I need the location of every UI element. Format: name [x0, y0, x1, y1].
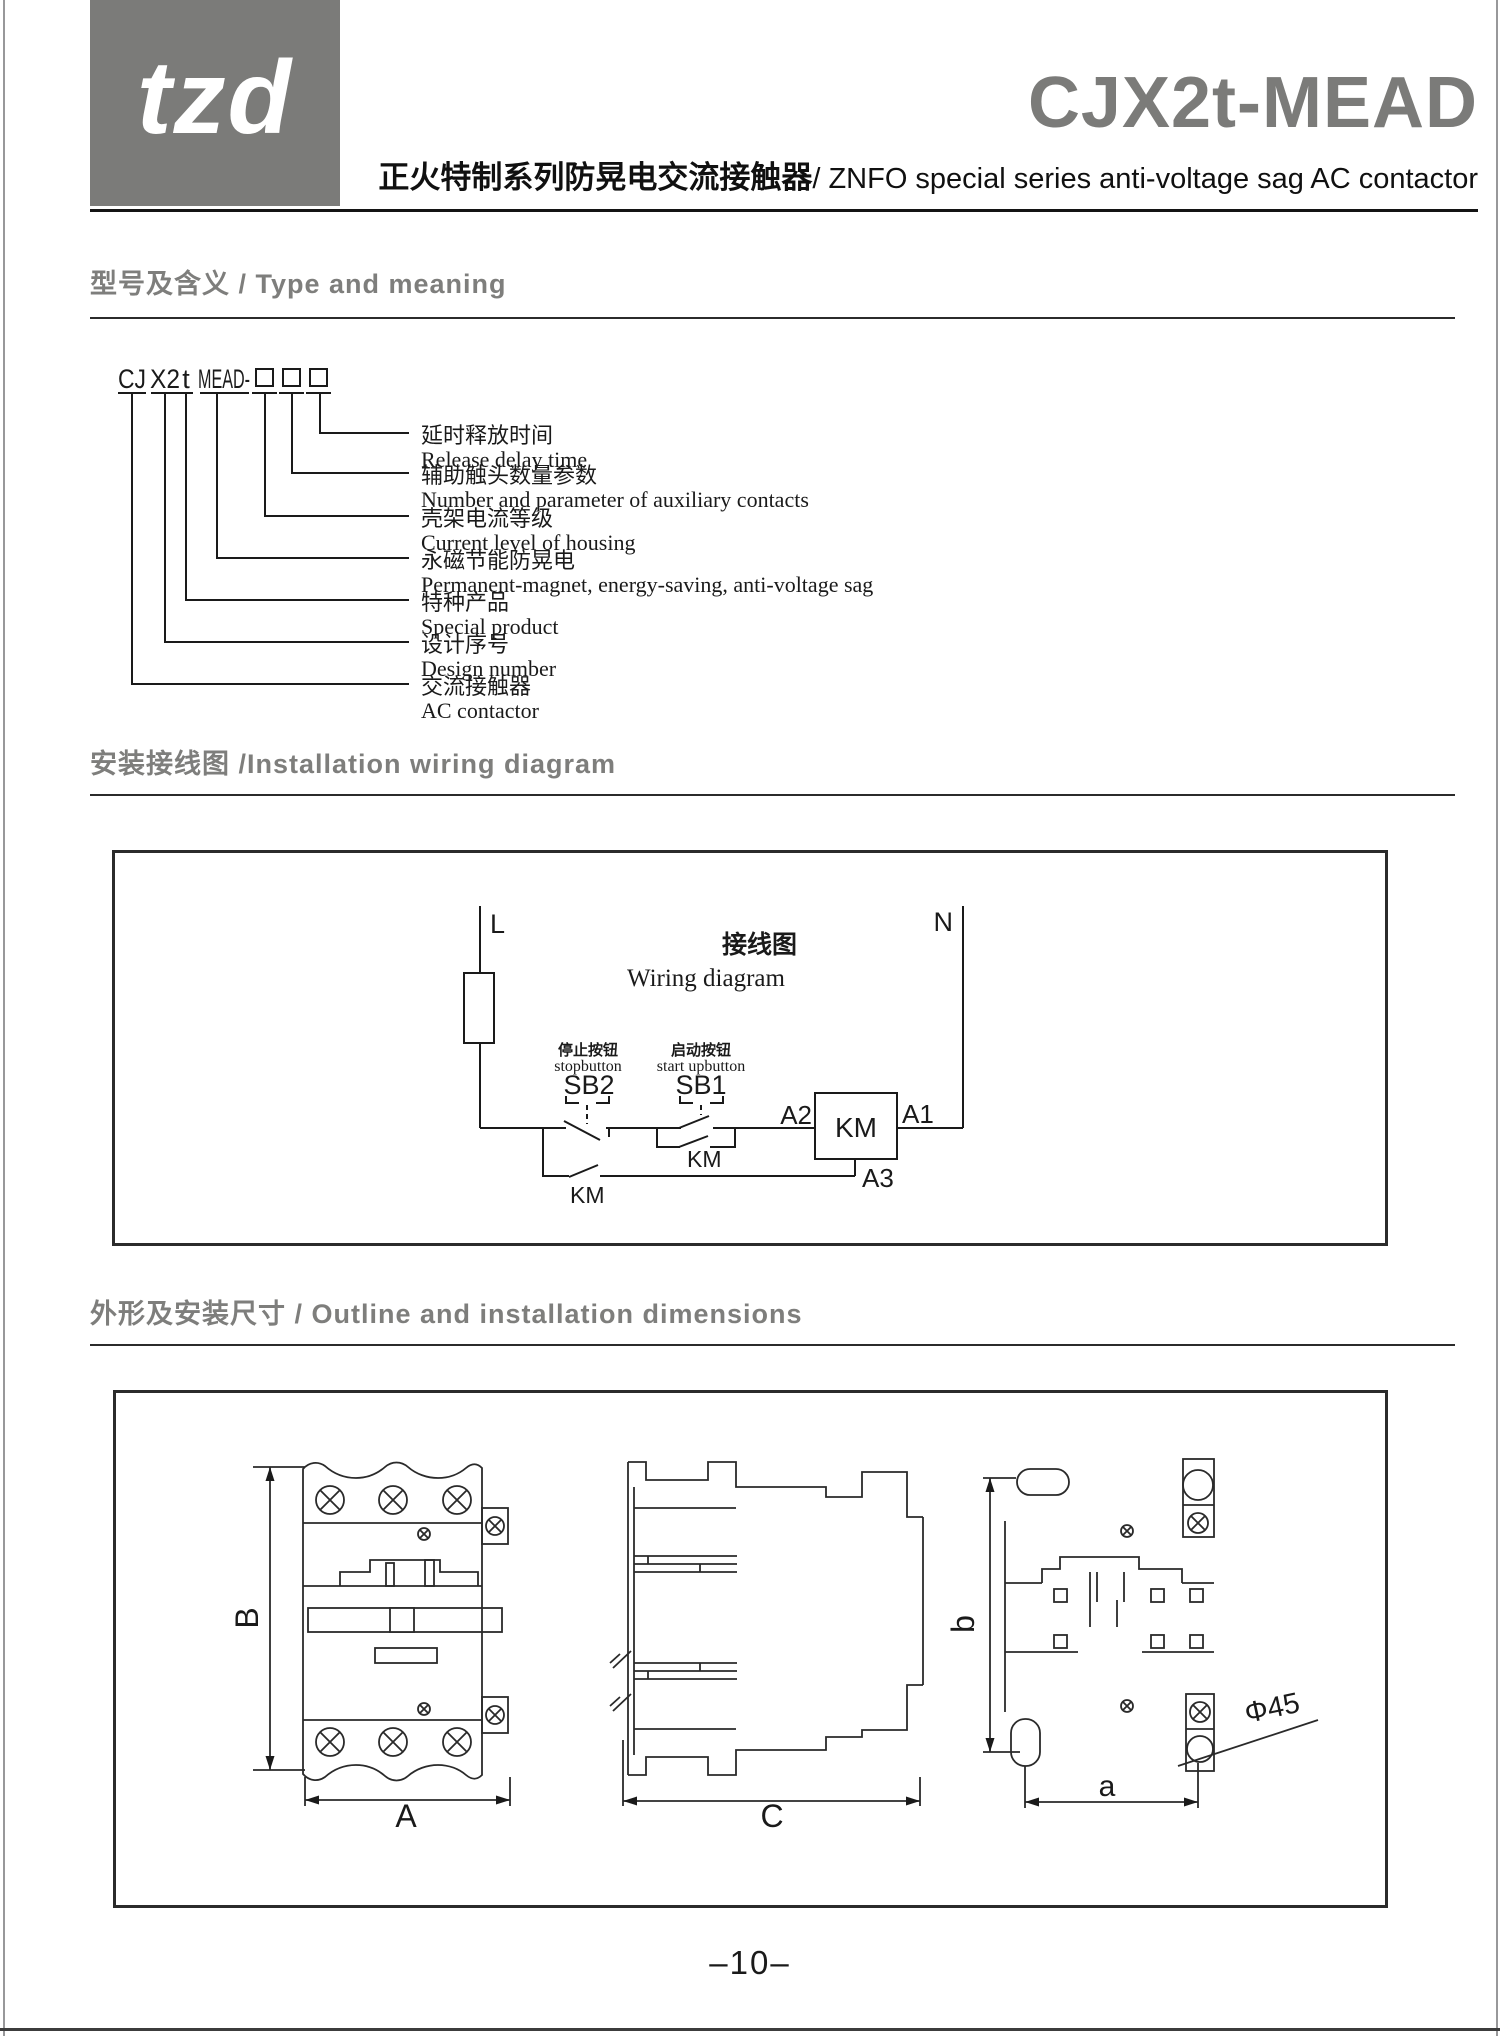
stop-button-label-zh: 停止按钮 — [558, 1041, 618, 1059]
page-title: CJX2t-MEAD — [400, 62, 1478, 144]
aux-tab-bottom — [482, 1697, 508, 1733]
code-box-3 — [310, 369, 327, 386]
dimension-a: a — [1025, 1763, 1198, 1808]
mounting-slot-bottom — [1011, 1719, 1040, 1766]
wiring-labels: L N 接线图 Wiring diagram 停止按钮 stopbutton S… — [490, 907, 953, 1208]
design-code-text: X2 — [150, 364, 180, 394]
wiring-title-en: Wiring diagram — [627, 965, 786, 992]
aux-tab-top — [482, 1508, 508, 1544]
label-permanent-magnet-zh: 永磁节能防晃电 — [421, 548, 575, 573]
section-heading-type-meaning: 型号及含义 / Type and meaning — [90, 262, 507, 301]
dim-hole-spacing-v-label: b — [945, 1615, 981, 1633]
page-number: –10– — [0, 1944, 1500, 1982]
dimension-C: C — [623, 1740, 920, 1834]
subtitle-english: / ZNFO special series anti-voltage sag A… — [812, 163, 1478, 195]
small-screw-marks-mounting — [1121, 1525, 1133, 1712]
model-code-row: CJ X2 t MEAD- — [118, 364, 327, 394]
neutral-terminal-label: N — [934, 907, 954, 937]
datasheet-page: tzd CJX2t-MEAD 正火特制系列防晃电交流接触器/ ZNFO spec… — [0, 0, 1500, 2036]
line-terminal-label: L — [490, 909, 505, 939]
side-view — [610, 1462, 923, 1775]
dimension-B: B — [229, 1467, 305, 1770]
label-aux-contacts-zh: 辅助触头数量参数 — [421, 463, 597, 488]
dim-height-label: B — [229, 1607, 265, 1628]
model-prefix-text: CJ — [118, 364, 146, 394]
dim-hole-spacing-h-label: a — [1099, 1770, 1116, 1803]
label-ac-contactor-en: AC contactor — [421, 698, 540, 723]
label-release-delay-zh: 延时释放时间 — [421, 423, 553, 448]
section-heading-wiring: 安装接线图 /Installation wiring diagram — [90, 742, 616, 781]
page-bottom-border — [0, 2028, 1500, 2031]
terminal-a1-label: A1 — [902, 1099, 934, 1129]
special-code-text: t — [182, 364, 190, 394]
code-box-1 — [256, 369, 273, 386]
terminal-screws-bottom — [316, 1728, 471, 1756]
dimension-A: A — [305, 1777, 510, 1834]
section-divider-2 — [90, 794, 1455, 796]
wiring-title-zh: 接线图 — [722, 930, 797, 959]
stop-button-ref: SB2 — [563, 1070, 614, 1100]
subtitle-chinese: 正火特制系列防晃电交流接触器 — [378, 160, 812, 195]
callout-lines — [132, 393, 409, 684]
terminal-column-top — [1183, 1459, 1214, 1537]
brand-logo-text: tzd — [137, 39, 293, 168]
section-divider-1 — [90, 317, 1455, 319]
series-code-text: MEAD- — [198, 364, 250, 394]
dimension-b: b — [945, 1478, 1020, 1752]
mounting-slot-top — [1017, 1469, 1069, 1495]
section-divider-3 — [90, 1344, 1455, 1346]
seal-in-contact-ref: KM — [687, 1146, 722, 1172]
aux-contact-ref: KM — [570, 1182, 605, 1208]
label-special-product-zh: 特种产品 — [421, 590, 509, 615]
terminal-screws-top — [316, 1486, 471, 1514]
header-divider — [90, 209, 1478, 212]
product-subtitle: 正火特制系列防晃电交流接触器/ ZNFO special series anti… — [340, 152, 1478, 197]
start-button-ref: SB1 — [675, 1070, 726, 1100]
dim-depth-label: C — [760, 1798, 783, 1834]
terminal-a3-label: A3 — [862, 1163, 894, 1193]
label-ac-contactor-zh: 交流接触器 — [421, 674, 531, 699]
brand-logo-box: tzd — [90, 0, 340, 206]
wiring-diagram: L N 接线图 Wiring diagram 停止按钮 stopbutton S… — [0, 850, 1500, 1250]
outline-drawings: B A — [0, 1390, 1500, 1910]
label-design-number-zh: 设计序号 — [421, 632, 509, 657]
terminal-a2-label: A2 — [780, 1100, 812, 1130]
small-screw-marks-front — [418, 1528, 430, 1715]
label-current-level-zh: 壳架电流等级 — [421, 506, 553, 531]
code-box-2 — [283, 369, 300, 386]
dim-hole-dia-label: Φ45 — [1242, 1687, 1303, 1730]
section-heading-outline: 外形及安装尺寸 / Outline and installation dimen… — [90, 1292, 803, 1331]
callout-labels: 延时释放时间 Release delay time 辅助触头数量参数 Numbe… — [421, 423, 873, 723]
start-button-label-zh: 启动按钮 — [671, 1041, 731, 1059]
type-designation-diagram: CJ X2 t MEAD- 延时释放时间 Release delay time … — [0, 340, 1500, 740]
coil-ref: KM — [835, 1112, 877, 1143]
front-view — [303, 1463, 508, 1781]
dim-width-label: A — [395, 1798, 417, 1834]
